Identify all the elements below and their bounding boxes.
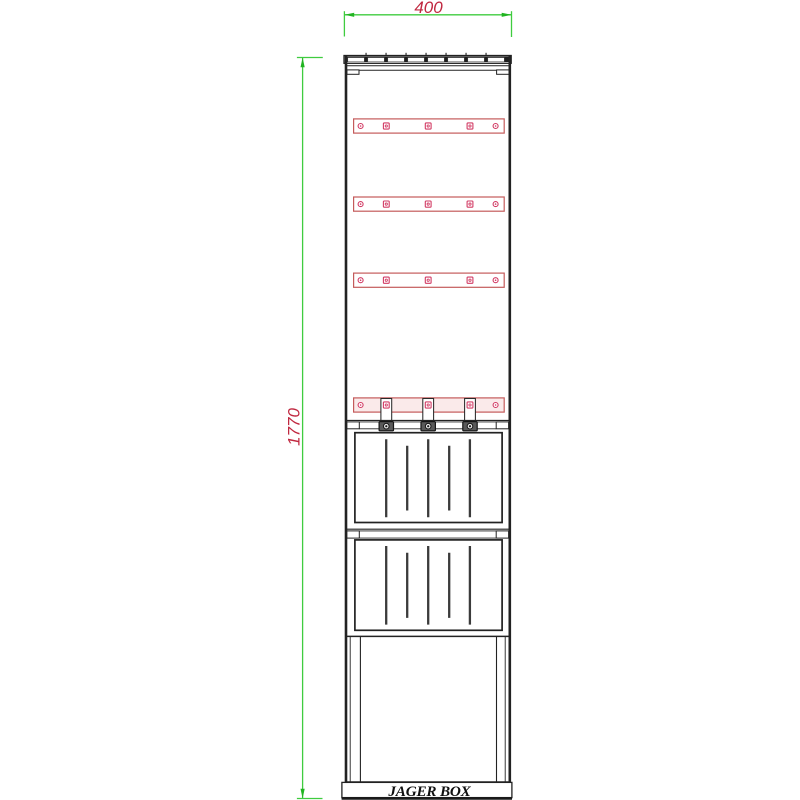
svg-text:JAGER BOX: JAGER BOX [387, 783, 471, 800]
svg-text:1770: 1770 [285, 408, 304, 446]
svg-text:400: 400 [414, 0, 443, 17]
